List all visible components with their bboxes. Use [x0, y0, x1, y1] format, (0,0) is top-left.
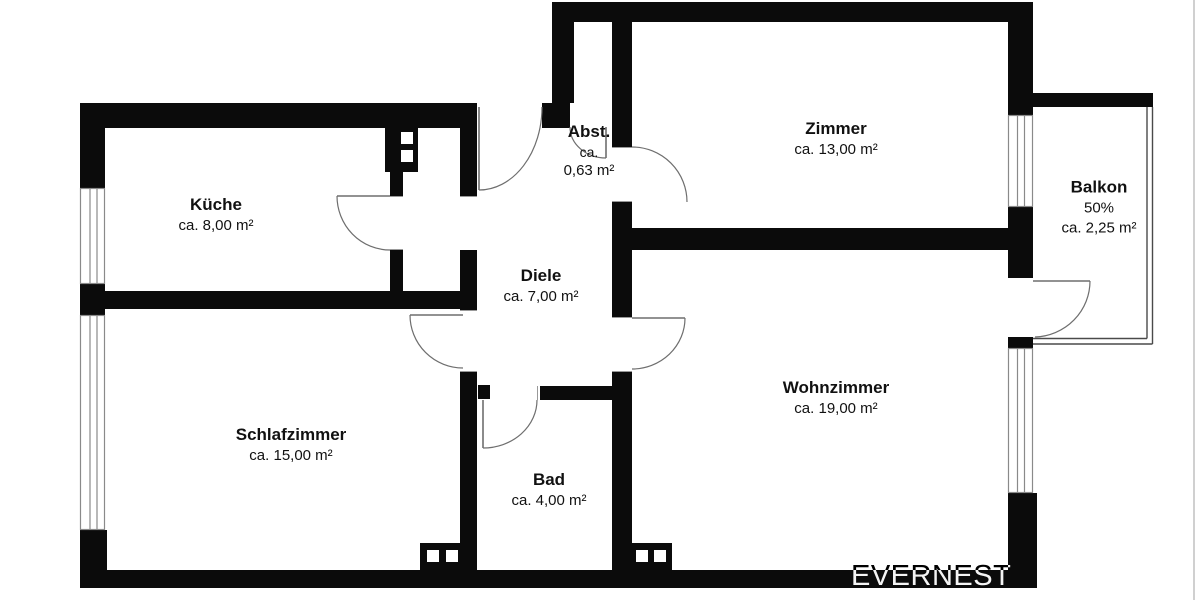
wall-right-mid1 — [1008, 207, 1033, 278]
floor-plan-drawing — [0, 0, 1200, 600]
floor-plan: Küche ca. 8,00 m² Abst. ca. 0,63 m² Zimm… — [0, 0, 1200, 600]
wall-right-bottom — [1008, 493, 1037, 588]
brand-watermark: EVERNEST — [851, 560, 1011, 593]
wall-bad-door-stub — [478, 385, 490, 399]
room-name-abstellraum: Abst. — [564, 121, 615, 143]
room-label-bad: Bad ca. 4,00 m² — [511, 469, 586, 511]
zimmer-door-arc — [632, 147, 687, 202]
wall-right-top — [1008, 2, 1033, 115]
room-label-abstellraum: Abst. ca. 0,63 m² — [564, 121, 615, 181]
bad-door-arc — [483, 400, 537, 448]
room-area-bad: ca. 4,00 m² — [511, 491, 586, 511]
doors — [337, 107, 1090, 448]
wall-kueche-door-lower — [390, 250, 403, 291]
wall-schlafzimmer-door-stub — [460, 250, 477, 310]
room-label-balkon: Balkon 50% ca. 2,25 m² — [1061, 176, 1136, 237]
wall-abst-left — [552, 22, 574, 103]
room-area-line2-abstellraum: 0,63 m² — [564, 161, 615, 181]
wall-kueche-door-upper — [390, 172, 403, 196]
room-name-zimmer: Zimmer — [794, 118, 877, 140]
wall-entry-nook — [460, 128, 477, 196]
wall-bad-right — [612, 372, 632, 572]
room-name-kueche: Küche — [178, 194, 253, 216]
window-zimmer-balkon — [1009, 116, 1033, 207]
wohnzimmer-door — [632, 318, 685, 369]
room-share-balkon: 50% — [1061, 199, 1136, 219]
room-name-diele: Diele — [503, 265, 578, 287]
balkon-door — [1033, 281, 1090, 337]
kueche-door-arc — [337, 196, 390, 250]
entrance-door — [479, 107, 542, 190]
room-label-kueche: Küche ca. 8,00 m² — [178, 194, 253, 236]
room-area-diele: ca. 7,00 m² — [503, 287, 578, 307]
window-kueche — [81, 189, 105, 284]
balcony-top-bar — [1033, 93, 1153, 107]
wall-diele-mid — [612, 202, 632, 317]
wall-zimmer-wohnzimmer-divider — [632, 228, 1010, 250]
wall-top-main — [552, 2, 1033, 22]
room-area-schlafzimmer: ca. 15,00 m² — [236, 446, 347, 466]
room-area-kueche: ca. 8,00 m² — [178, 216, 253, 236]
kueche-door — [337, 196, 390, 250]
room-name-balkon: Balkon — [1061, 176, 1136, 198]
wohnzimmer-door-arc — [632, 318, 685, 369]
wall-bad-top — [540, 386, 612, 400]
zimmer-door — [632, 147, 687, 202]
room-area-balkon: ca. 2,25 m² — [1061, 218, 1136, 238]
windows — [81, 116, 1033, 530]
window-schlafzimmer — [81, 316, 105, 530]
room-area-wohnzimmer: ca. 19,00 m² — [783, 399, 889, 419]
window-wohnzimmer — [1009, 349, 1033, 493]
walls — [80, 2, 1153, 588]
room-area-line1-abstellraum: ca. — [564, 143, 615, 161]
room-name-schlafzimmer: Schlafzimmer — [236, 424, 347, 446]
room-label-schlafzimmer: Schlafzimmer ca. 15,00 m² — [236, 424, 347, 466]
schlafzimmer-door-arc — [410, 315, 463, 368]
wall-kueche-schlafzimmer — [80, 291, 477, 309]
room-label-zimmer: Zimmer ca. 13,00 m² — [794, 118, 877, 160]
balkon-door-arc — [1035, 281, 1090, 337]
entrance-door-arc — [479, 107, 542, 190]
schlafzimmer-door — [410, 315, 463, 368]
room-label-diele: Diele ca. 7,00 m² — [503, 265, 578, 307]
room-area-zimmer: ca. 13,00 m² — [794, 140, 877, 160]
wall-bad-left — [460, 372, 477, 572]
room-name-wohnzimmer: Wohnzimmer — [783, 377, 889, 399]
room-label-wohnzimmer: Wohnzimmer ca. 19,00 m² — [783, 377, 889, 419]
bad-door — [483, 400, 537, 448]
room-name-bad: Bad — [511, 469, 586, 491]
wall-zimmer-left — [612, 22, 632, 147]
